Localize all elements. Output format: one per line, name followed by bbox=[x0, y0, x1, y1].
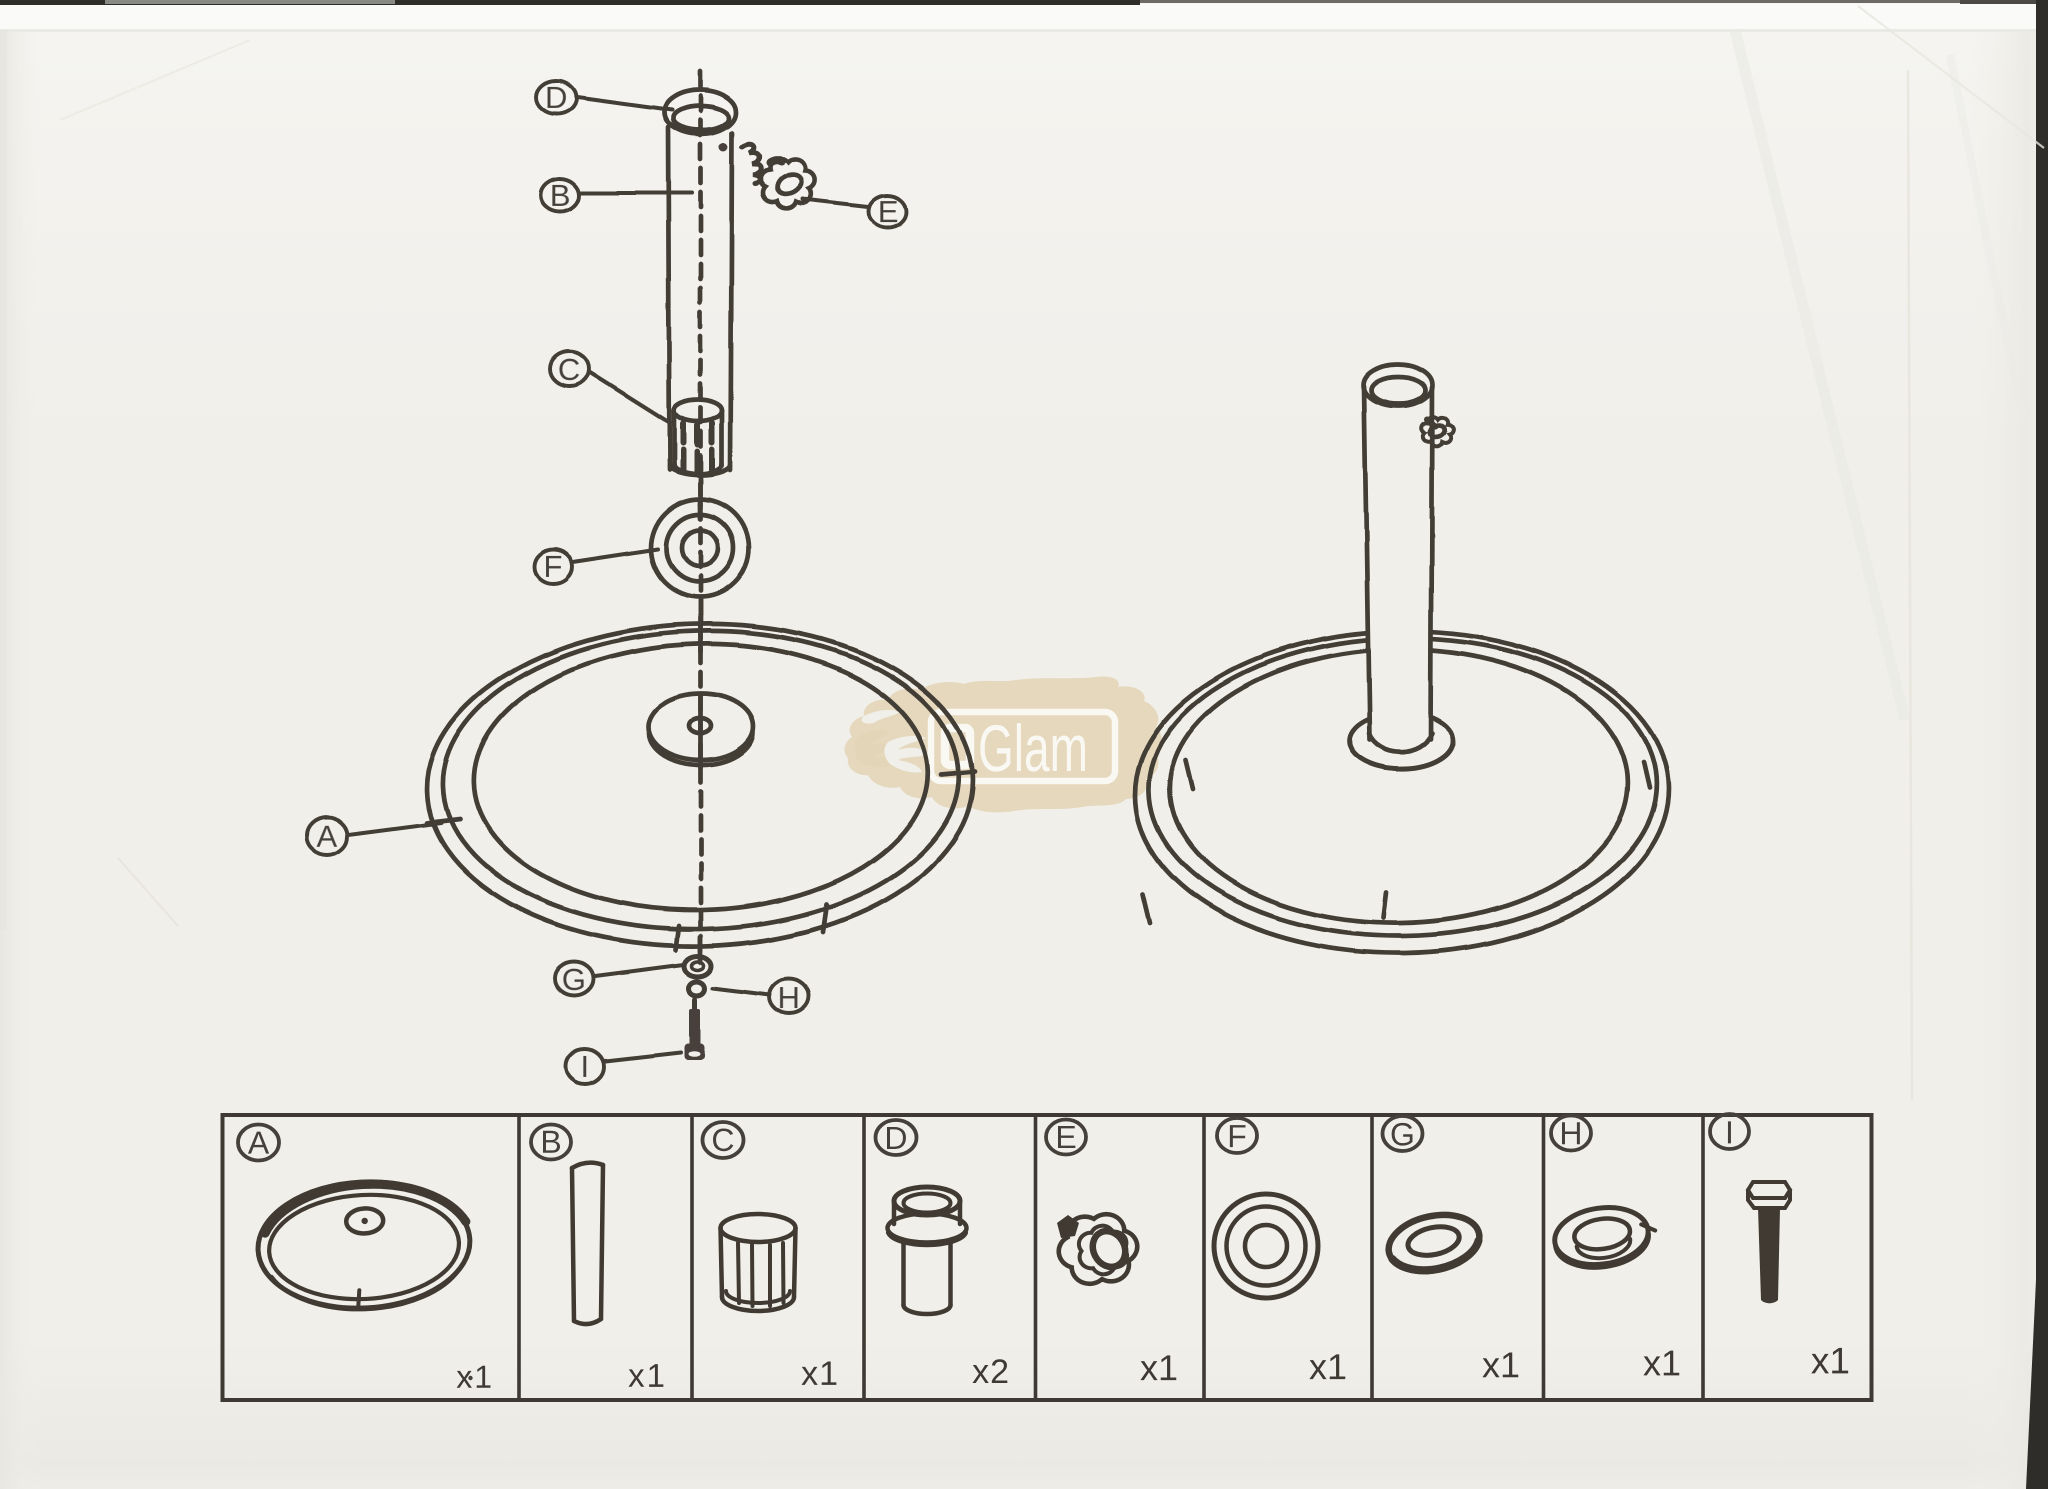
svg-text:F: F bbox=[1227, 1118, 1247, 1154]
svg-text:H: H bbox=[778, 980, 800, 1015]
svg-text:F: F bbox=[544, 549, 563, 584]
svg-text:x1: x1 bbox=[456, 1359, 494, 1395]
svg-text:Glam: Glam bbox=[978, 711, 1088, 785]
svg-text:x2: x2 bbox=[972, 1353, 1010, 1391]
svg-text:x1: x1 bbox=[1140, 1347, 1178, 1388]
svg-text:C: C bbox=[711, 1122, 734, 1158]
svg-text:I: I bbox=[1725, 1114, 1734, 1150]
svg-text:E: E bbox=[1055, 1119, 1076, 1155]
svg-text:x1: x1 bbox=[1309, 1346, 1347, 1387]
svg-text:B: B bbox=[540, 1124, 561, 1160]
svg-text:x1: x1 bbox=[1811, 1340, 1850, 1381]
svg-text:G: G bbox=[562, 962, 586, 997]
svg-text:H: H bbox=[1559, 1115, 1582, 1151]
svg-text:x1: x1 bbox=[801, 1355, 839, 1393]
svg-text:E: E bbox=[878, 194, 899, 229]
svg-text:x1: x1 bbox=[1643, 1342, 1681, 1383]
svg-text:D: D bbox=[545, 80, 567, 115]
svg-text:G: G bbox=[1390, 1116, 1415, 1152]
svg-text:x1: x1 bbox=[628, 1357, 667, 1394]
svg-text:B: B bbox=[550, 178, 571, 213]
svg-text:I: I bbox=[580, 1049, 589, 1084]
svg-text:C: C bbox=[558, 352, 580, 387]
svg-text:A: A bbox=[248, 1125, 270, 1161]
svg-text:x1: x1 bbox=[1482, 1344, 1520, 1385]
svg-text:D: D bbox=[884, 1120, 907, 1156]
svg-text:A: A bbox=[317, 819, 338, 854]
